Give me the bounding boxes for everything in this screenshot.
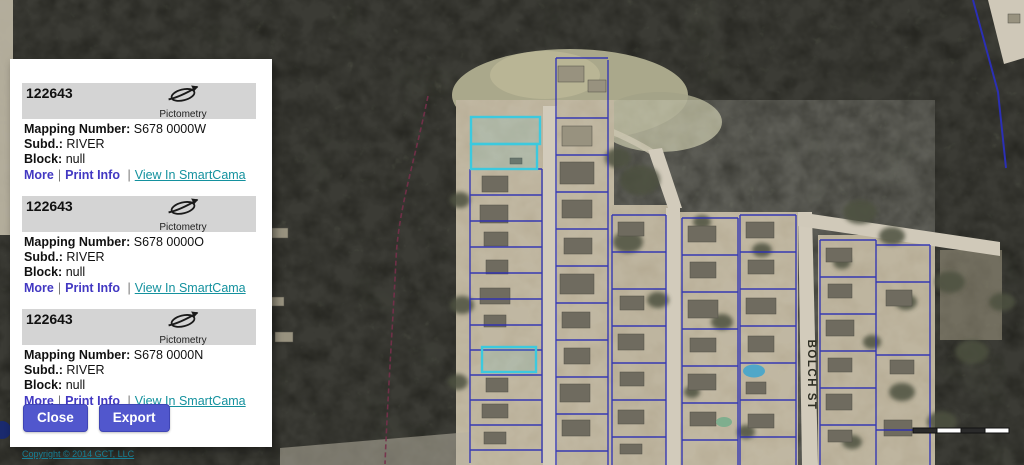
field-row: Mapping Number: S678 0000W: [24, 122, 256, 137]
scale-bar: [913, 428, 1009, 433]
record-header: 122643 Pictometry: [22, 309, 256, 345]
highlighted-parcel[interactable]: [471, 144, 537, 169]
pictometry-logo-icon: Pictometry: [148, 84, 218, 122]
copyright-link[interactable]: Copyright © 2014 GCT, LLC: [22, 449, 134, 459]
field-row: Block: null: [24, 265, 256, 280]
parcel-record: 122643 Pictometry Mapping Number: S678 0…: [22, 196, 256, 296]
more-link[interactable]: More: [24, 168, 54, 182]
record-links: More|Print Info |View In SmartCama: [24, 167, 256, 183]
field-row: Block: null: [24, 378, 256, 393]
export-button[interactable]: Export: [99, 404, 170, 432]
field-row: Mapping Number: S678 0000O: [24, 235, 256, 250]
pictometry-logo-label: Pictometry: [159, 335, 206, 346]
highlighted-parcel[interactable]: [482, 347, 536, 372]
record-header: 122643 Pictometry: [22, 83, 256, 119]
pictometry-logo-label: Pictometry: [159, 222, 206, 233]
street-label: BOLCH ST: [805, 340, 817, 411]
field-row: Block: null: [24, 152, 256, 167]
parcel-id: 122643: [26, 198, 73, 214]
field-row: Subd.: RIVER: [24, 363, 256, 378]
record-header: 122643 Pictometry: [22, 196, 256, 232]
print-info-link[interactable]: Print Info: [65, 281, 120, 295]
field-row: Subd.: RIVER: [24, 250, 256, 265]
parcel-record: 122643 Pictometry Mapping Number: S678 0…: [22, 83, 256, 183]
highlighted-parcel[interactable]: [471, 117, 540, 144]
pictometry-logo-icon: Pictometry: [148, 310, 218, 348]
parcel-id: 122643: [26, 311, 73, 327]
field-row: Mapping Number: S678 0000N: [24, 348, 256, 363]
pictometry-logo-icon: Pictometry: [148, 197, 218, 235]
parcel-id: 122643: [26, 85, 73, 101]
pictometry-logo-label: Pictometry: [159, 109, 206, 120]
record-links: More|Print Info |View In SmartCama: [24, 280, 256, 296]
more-link[interactable]: More: [24, 281, 54, 295]
panel-footer: Close Export: [23, 404, 170, 432]
gis-map-viewer: BOLCH ST 122643: [0, 0, 1024, 465]
print-info-link[interactable]: Print Info: [65, 168, 120, 182]
parcel-record: 122643 Pictometry Mapping Number: S678 0…: [22, 309, 256, 409]
view-smartcama-link[interactable]: View In SmartCama: [135, 168, 246, 182]
view-smartcama-link[interactable]: View In SmartCama: [135, 281, 246, 295]
close-button[interactable]: Close: [23, 404, 88, 432]
field-row: Subd.: RIVER: [24, 137, 256, 152]
parcel-results-panel: 122643 Pictometry Mapping Number: S678 0…: [10, 59, 272, 447]
